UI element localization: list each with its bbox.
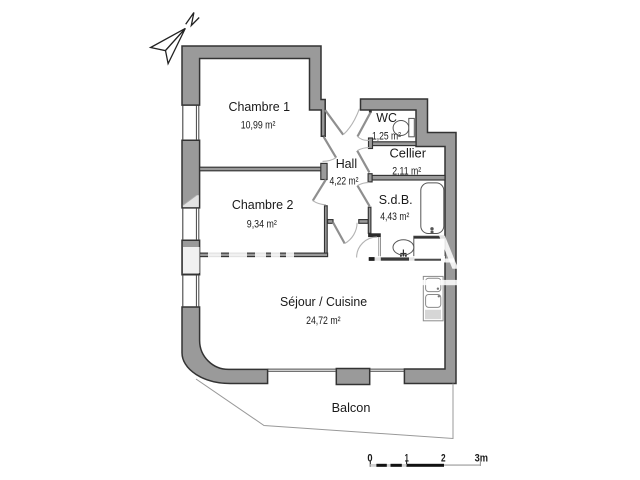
svg-text:Cellier: Cellier: [390, 146, 427, 161]
svg-text:2,11 m²: 2,11 m²: [392, 166, 421, 178]
svg-text:9,34 m²: 9,34 m²: [247, 219, 277, 231]
svg-text:3m: 3m: [475, 453, 488, 465]
svg-text:S.d.B.: S.d.B.: [379, 192, 413, 207]
svg-text:1,25 m²: 1,25 m²: [372, 131, 401, 143]
svg-text:4,43 m²: 4,43 m²: [380, 211, 409, 223]
svg-text:WC: WC: [376, 110, 397, 125]
svg-text:Balcon: Balcon: [332, 400, 371, 415]
svg-text:Chambre 2: Chambre 2: [232, 197, 294, 212]
svg-text:Hall: Hall: [336, 156, 357, 171]
svg-text:10,99 m²: 10,99 m²: [241, 119, 276, 131]
svg-text:Chambre 1: Chambre 1: [229, 99, 291, 114]
svg-text:24,72 m²: 24,72 m²: [306, 315, 341, 327]
svg-text:2: 2: [441, 453, 446, 465]
svg-text:4,22 m²: 4,22 m²: [330, 176, 359, 188]
svg-text:Séjour / Cuisine: Séjour / Cuisine: [280, 294, 367, 309]
